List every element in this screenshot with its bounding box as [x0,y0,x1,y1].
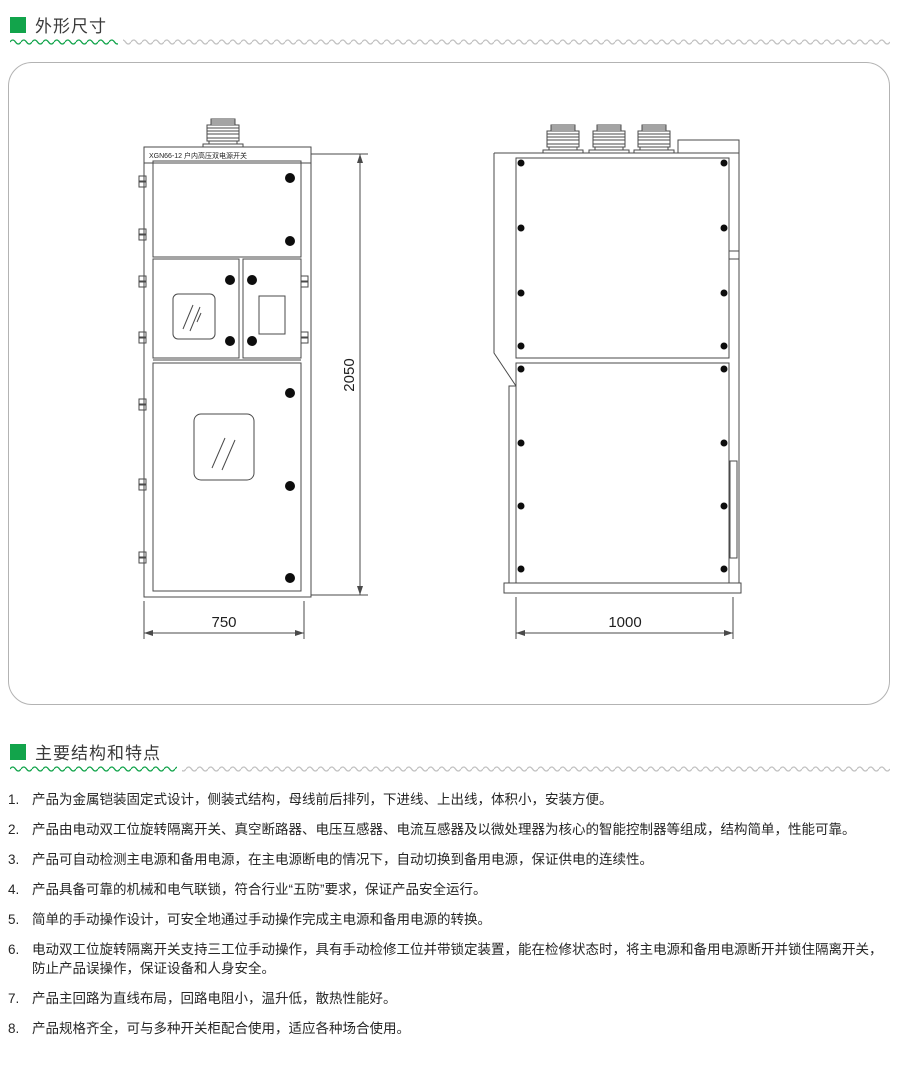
feature-text: 产品由电动双工位旋转隔离开关、真空断路器、电压互感器、电流互感器及以微处理器为核… [32,820,894,839]
feature-item-2: 2. 产品由电动双工位旋转隔离开关、真空断路器、电压互感器、电流互感器及以微处理… [8,820,894,839]
section-title: 外形尺寸 [35,12,107,37]
hinge-icon [139,479,146,490]
feature-text: 电动双工位旋转隔离开关支持三工位手动操作，具有手动检修工位并带锁定装置，能在检修… [32,940,894,978]
feature-item-5: 5. 简单的手动操作设计，可安全地通过手动操作完成主电源和备用电源的转换。 [8,910,894,929]
green-square-bullet-icon [10,17,26,33]
feature-number: 3. [8,850,24,869]
feature-text: 产品主回路为直线布局，回路电阻小，温升低，散热性能好。 [32,989,894,1008]
side-bushing [543,125,583,153]
section-title: 主要结构和特点 [35,739,161,764]
dimension-front-width: 750 [144,601,304,639]
feature-item-7: 7. 产品主回路为直线布局，回路电阻小，温升低，散热性能好。 [8,989,894,1008]
hinge-icon [301,276,308,287]
dim-depth-1000: 1000 [608,614,641,631]
dim-height-2050: 2050 [341,358,358,391]
section-header-outline-dimensions: 外形尺寸 [10,12,107,37]
feature-number: 7. [8,989,24,1008]
feature-number: 5. [8,910,24,929]
feature-text: 产品规格齐全，可与多种开关柜配合使用，适应各种场合使用。 [32,1019,894,1038]
green-square-bullet-icon [10,744,26,760]
feature-number: 4. [8,880,24,899]
dimension-side-depth: 1000 [516,597,733,639]
side-view-drawing: 1000 [494,125,741,639]
feature-item-1: 1. 产品为金属铠装固定式设计，侧装式结构，母线前后排列，下进线、上出线，体积小… [8,790,894,809]
hinge-icon [139,276,146,287]
feature-number: 2. [8,820,24,839]
feature-item-3: 3. 产品可自动检测主电源和备用电源，在主电源断电的情况下，自动切换到备用电源，… [8,850,894,869]
feature-text: 产品为金属铠装固定式设计，侧装式结构，母线前后排列，下进线、上出线，体积小，安装… [32,790,894,809]
dimension-height: 2050 [311,154,368,595]
dim-width-750: 750 [211,614,236,631]
feature-item-4: 4. 产品具备可靠的机械和电气联锁，符合行业“五防”要求，保证产品安全运行。 [8,880,894,899]
hinge-icon [301,332,308,343]
feature-number: 6. [8,940,24,978]
feature-text: 产品可自动检测主电源和备用电源，在主电源断电的情况下，自动切换到备用电源，保证供… [32,850,894,869]
front-top-bushing [203,119,243,147]
hinge-icon [139,552,146,563]
hinge-icon [139,229,146,240]
wavy-divider [10,763,890,773]
side-bushing [589,125,629,153]
hinge-icon [139,332,146,343]
hinge-icon [139,399,146,410]
side-bushing [634,125,674,153]
feature-text: 简单的手动操作设计，可安全地通过手动操作完成主电源和备用电源的转换。 [32,910,894,929]
feature-number: 1. [8,790,24,809]
hinge-icon [139,176,146,187]
section-header-structure-features: 主要结构和特点 [10,739,161,764]
feature-text: 产品具备可靠的机械和电气联锁，符合行业“五防”要求，保证产品安全运行。 [32,880,894,899]
feature-item-6: 6. 电动双工位旋转隔离开关支持三工位手动操作，具有手动检修工位并带锁定装置，能… [8,940,894,978]
wavy-divider [10,36,890,46]
cabinet-model-label: XGN66-12 户内高压双电源开关 [149,151,247,160]
feature-list: 1. 产品为金属铠装固定式设计，侧装式结构，母线前后排列，下进线、上出线，体积小… [8,790,894,1049]
dimension-drawing: XGN66-12 户内高压双电源开关 [9,63,889,704]
feature-item-8: 8. 产品规格齐全，可与多种开关柜配合使用，适应各种场合使用。 [8,1019,894,1038]
front-view-drawing: XGN66-12 户内高压双电源开关 [139,119,368,639]
feature-number: 8. [8,1019,24,1038]
outline-drawing-panel: XGN66-12 户内高压双电源开关 [8,62,890,705]
